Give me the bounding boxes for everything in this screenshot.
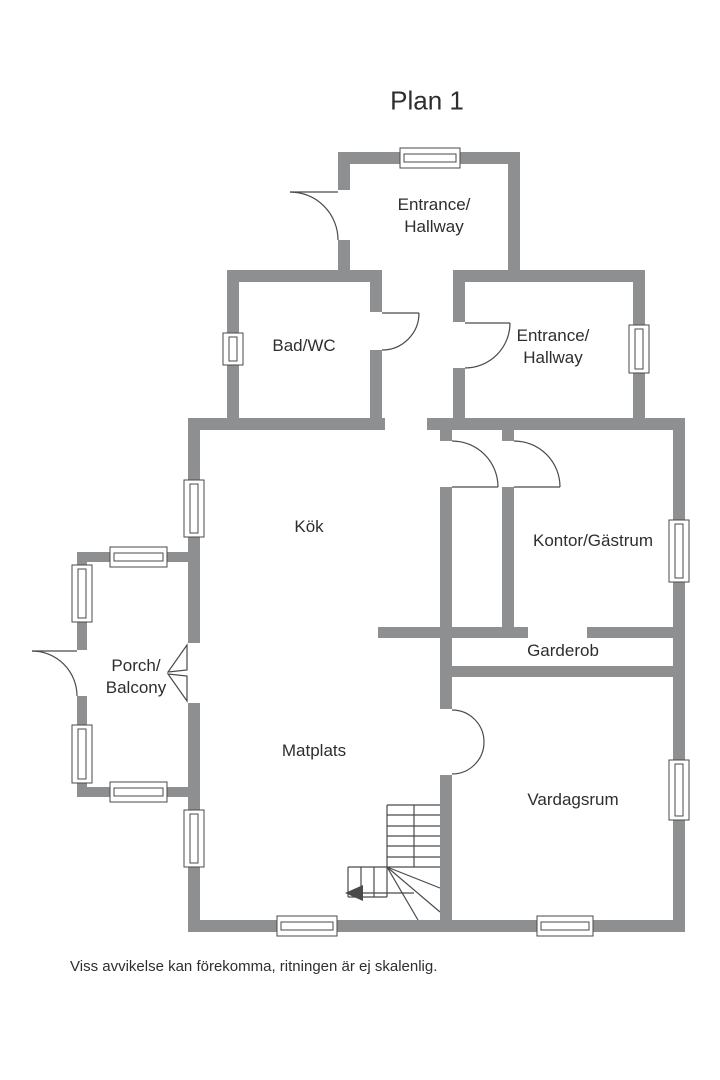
wall-garderob-top-left <box>378 627 528 638</box>
door-swing <box>465 323 510 368</box>
wall-entrance2-left-lower <box>453 368 465 430</box>
wall-divider-lower <box>440 775 452 920</box>
staircase <box>345 805 440 920</box>
window-symbol <box>669 760 689 820</box>
room-label-line: Hallway <box>517 347 590 369</box>
window-symbol <box>223 333 243 365</box>
room-label-matplats: Matplats <box>282 740 346 762</box>
room-label-garderob: Garderob <box>527 640 599 662</box>
wall-corridor-right-main <box>502 487 514 627</box>
floor-plan-canvas: Plan 1 Entrance/ Hallway Bad/WC Entrance… <box>0 0 720 1080</box>
wall-badwc-top <box>227 270 382 282</box>
wall-corridor-right-stub <box>502 430 514 441</box>
wall-badwc-right-upper <box>370 282 382 312</box>
door-swing <box>382 313 419 350</box>
door-swing <box>290 192 338 240</box>
window-symbol <box>400 148 460 168</box>
door-swing <box>514 441 560 487</box>
wall-entrance2-top <box>453 270 645 282</box>
room-label-line: Entrance/ <box>517 325 590 347</box>
wall-corridor-left-stub <box>440 430 452 441</box>
wall-band-left <box>188 418 385 430</box>
wall-entrance1-left-lower <box>338 240 350 282</box>
room-label-vardagsrum: Vardagsrum <box>527 789 618 811</box>
window-symbol <box>629 325 649 373</box>
room-label-line: Hallway <box>398 216 471 238</box>
window-symbol <box>110 782 167 802</box>
door-swing <box>452 441 498 487</box>
room-label-line: Balcony <box>106 677 166 699</box>
room-label-kontor-gastrum: Kontor/Gästrum <box>533 530 653 552</box>
window-symbol <box>537 916 593 936</box>
wall-entrance2-left-upper <box>453 282 465 322</box>
wall-garderob-top-right <box>587 627 673 638</box>
room-label-entrance-mid: Entrance/ Hallway <box>517 325 590 369</box>
wall-bottom <box>188 920 685 932</box>
page-title: Plan 1 <box>390 86 464 117</box>
room-label-porch-balcony: Porch/ Balcony <box>106 655 166 699</box>
window-symbol <box>72 725 92 783</box>
room-label-line: Entrance/ <box>398 194 471 216</box>
wall-garderob-bottom <box>446 666 673 677</box>
window-symbol <box>72 565 92 622</box>
disclaimer-text: Viss avvikelse kan förekomma, ritningen … <box>70 958 437 975</box>
window-symbol <box>669 520 689 582</box>
door-swing <box>32 651 77 696</box>
room-label-bad-wc: Bad/WC <box>272 335 335 357</box>
window-symbol <box>184 480 204 537</box>
wall-badwc-right-lower <box>370 350 382 430</box>
window-symbol <box>277 916 337 936</box>
room-label-line: Porch/ <box>106 655 166 677</box>
window-symbol <box>110 547 167 567</box>
double-door-swing <box>452 710 484 774</box>
wall-entrance1-left-upper <box>338 164 350 190</box>
window-symbol <box>184 810 204 867</box>
wall-right-main <box>673 418 685 932</box>
room-label-entrance-top: Entrance/ Hallway <box>398 194 471 238</box>
wall-entrance1-right <box>508 164 520 282</box>
wall-band-right <box>427 418 685 430</box>
room-label-kok: Kök <box>294 516 323 538</box>
double-door-porch <box>168 645 187 701</box>
